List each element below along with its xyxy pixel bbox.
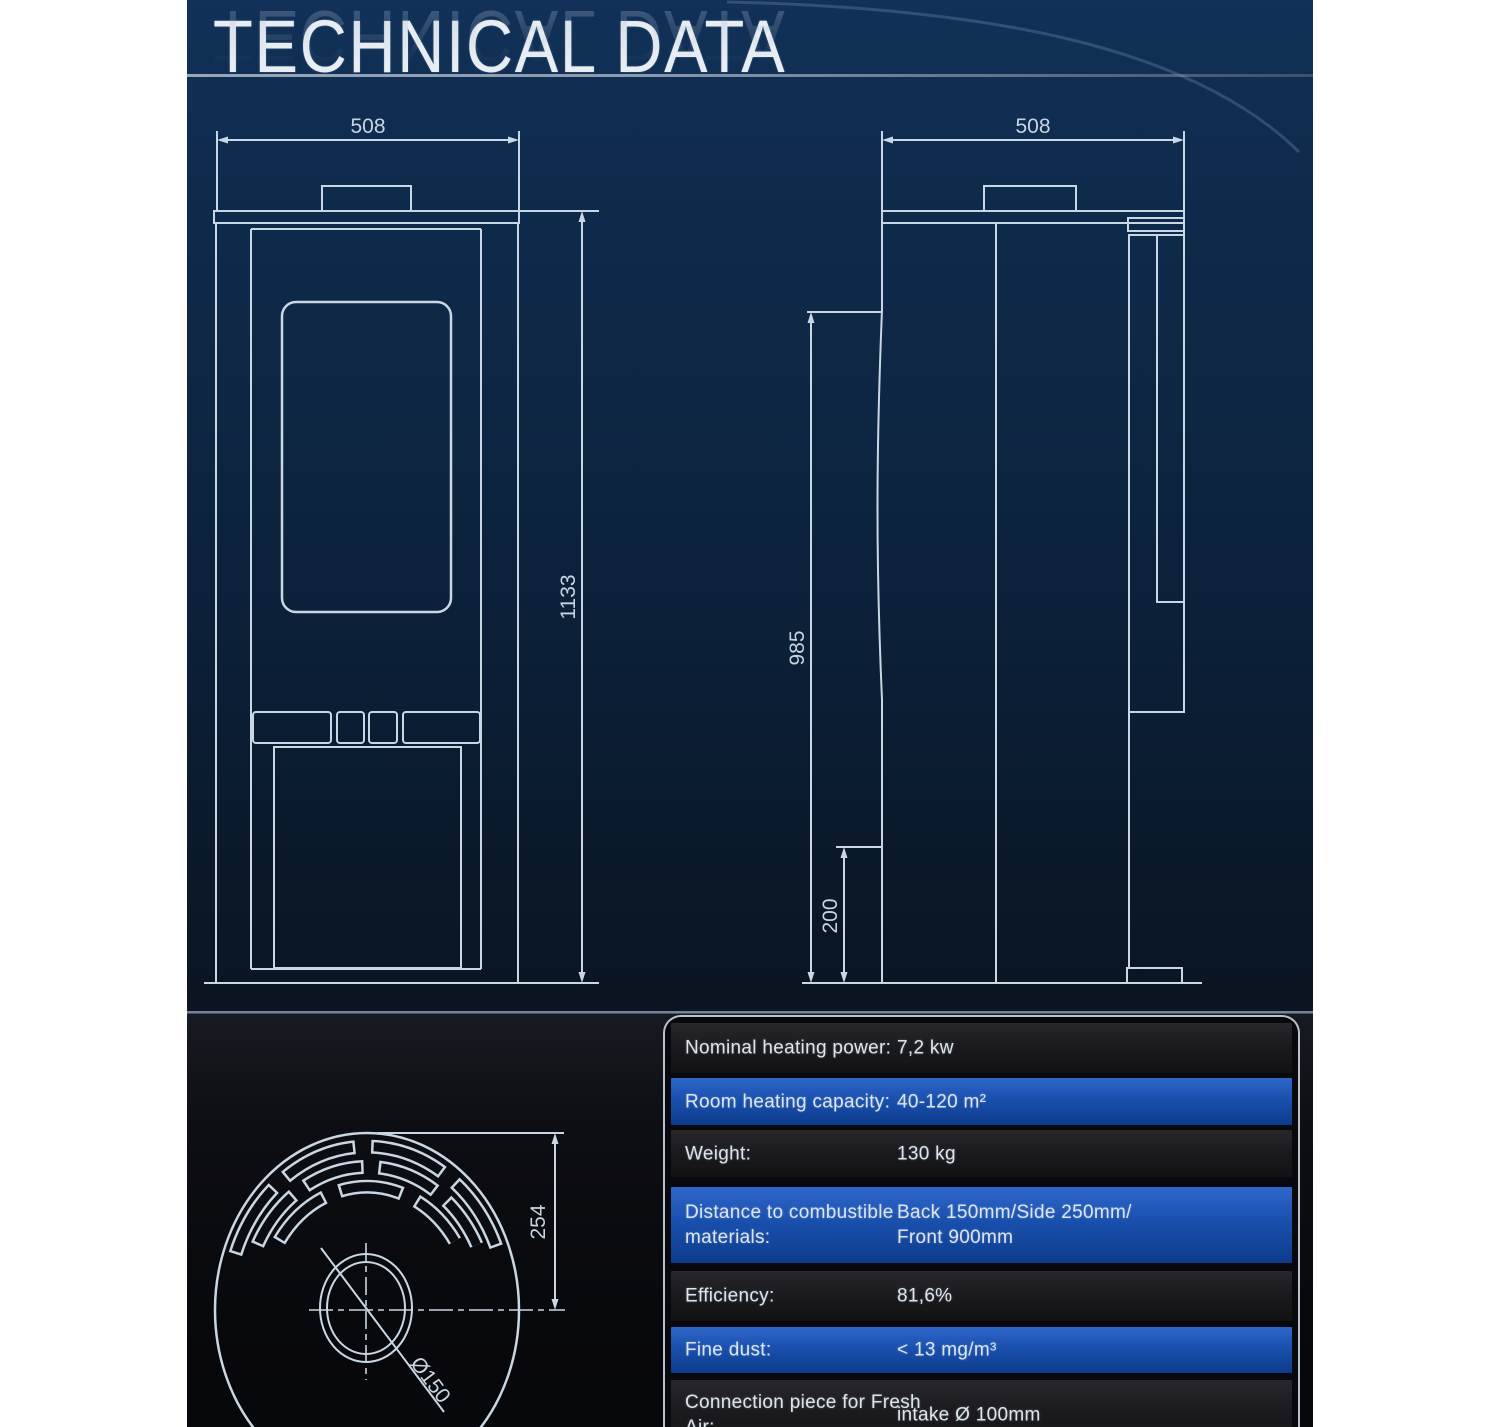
- spec-value: Back 150mm/Side 250mm/ Front 900mm: [897, 1200, 1287, 1250]
- table-row: Efficiency: 81,6%: [671, 1271, 1292, 1321]
- spec-value: 130 kg: [897, 1141, 1287, 1166]
- side-height-dim-label: 985: [786, 630, 809, 665]
- spec-label: Nominal heating power:: [685, 1035, 895, 1060]
- table-row: Distance to combustible materials: Back …: [671, 1187, 1292, 1263]
- spec-label: Weight:: [685, 1141, 895, 1166]
- specification-table: Nominal heating power: 7,2 kw Room heati…: [663, 1015, 1300, 1427]
- table-row: Connection piece for Fresh Air: intake Ø…: [671, 1380, 1292, 1427]
- spec-value: < 13 mg/m³: [897, 1337, 1287, 1362]
- spec-label: Efficiency:: [685, 1283, 895, 1308]
- front-view-dimension-arrows: [217, 137, 586, 984]
- top-view-vent-slots: [235, 1147, 498, 1254]
- front-view-drawing: [204, 131, 599, 983]
- section-divider: [187, 1011, 1313, 1014]
- table-row: Weight: 130 kg: [671, 1130, 1292, 1177]
- spec-value: 7,2 kw: [897, 1035, 1287, 1060]
- spec-value: 81,6%: [897, 1283, 1287, 1308]
- side-view-drawing: [802, 131, 1202, 983]
- front-width-dim-label: 508: [350, 115, 385, 138]
- spec-value: 40-120 m²: [897, 1089, 1287, 1114]
- decorative-swoosh: [727, 2, 1299, 152]
- spec-label: Room heating capacity:: [685, 1089, 895, 1114]
- side-plinth-dim-label: 200: [819, 898, 842, 933]
- table-row: Fine dust: < 13 mg/m³: [671, 1327, 1292, 1373]
- side-depth-dim-label: 508: [1015, 115, 1050, 138]
- flue-diameter-dim-label: Ø150: [406, 1353, 455, 1408]
- top-view-drawing: [215, 1133, 565, 1427]
- spec-label: Distance to combustible materials:: [685, 1200, 930, 1250]
- spec-value: intake Ø 100mm: [897, 1402, 1287, 1427]
- spec-label: Fine dust:: [685, 1337, 895, 1362]
- front-height-dim-label: 1133: [557, 574, 580, 619]
- table-row: Room heating capacity: 40-120 m²: [671, 1078, 1292, 1125]
- technical-data-sheet: TECHNICAL DATA TECHNICAL DATA: [0, 0, 1500, 1427]
- table-row: Nominal heating power: 7,2 kw: [671, 1023, 1292, 1073]
- top-radius-dim-label: 254: [527, 1204, 550, 1239]
